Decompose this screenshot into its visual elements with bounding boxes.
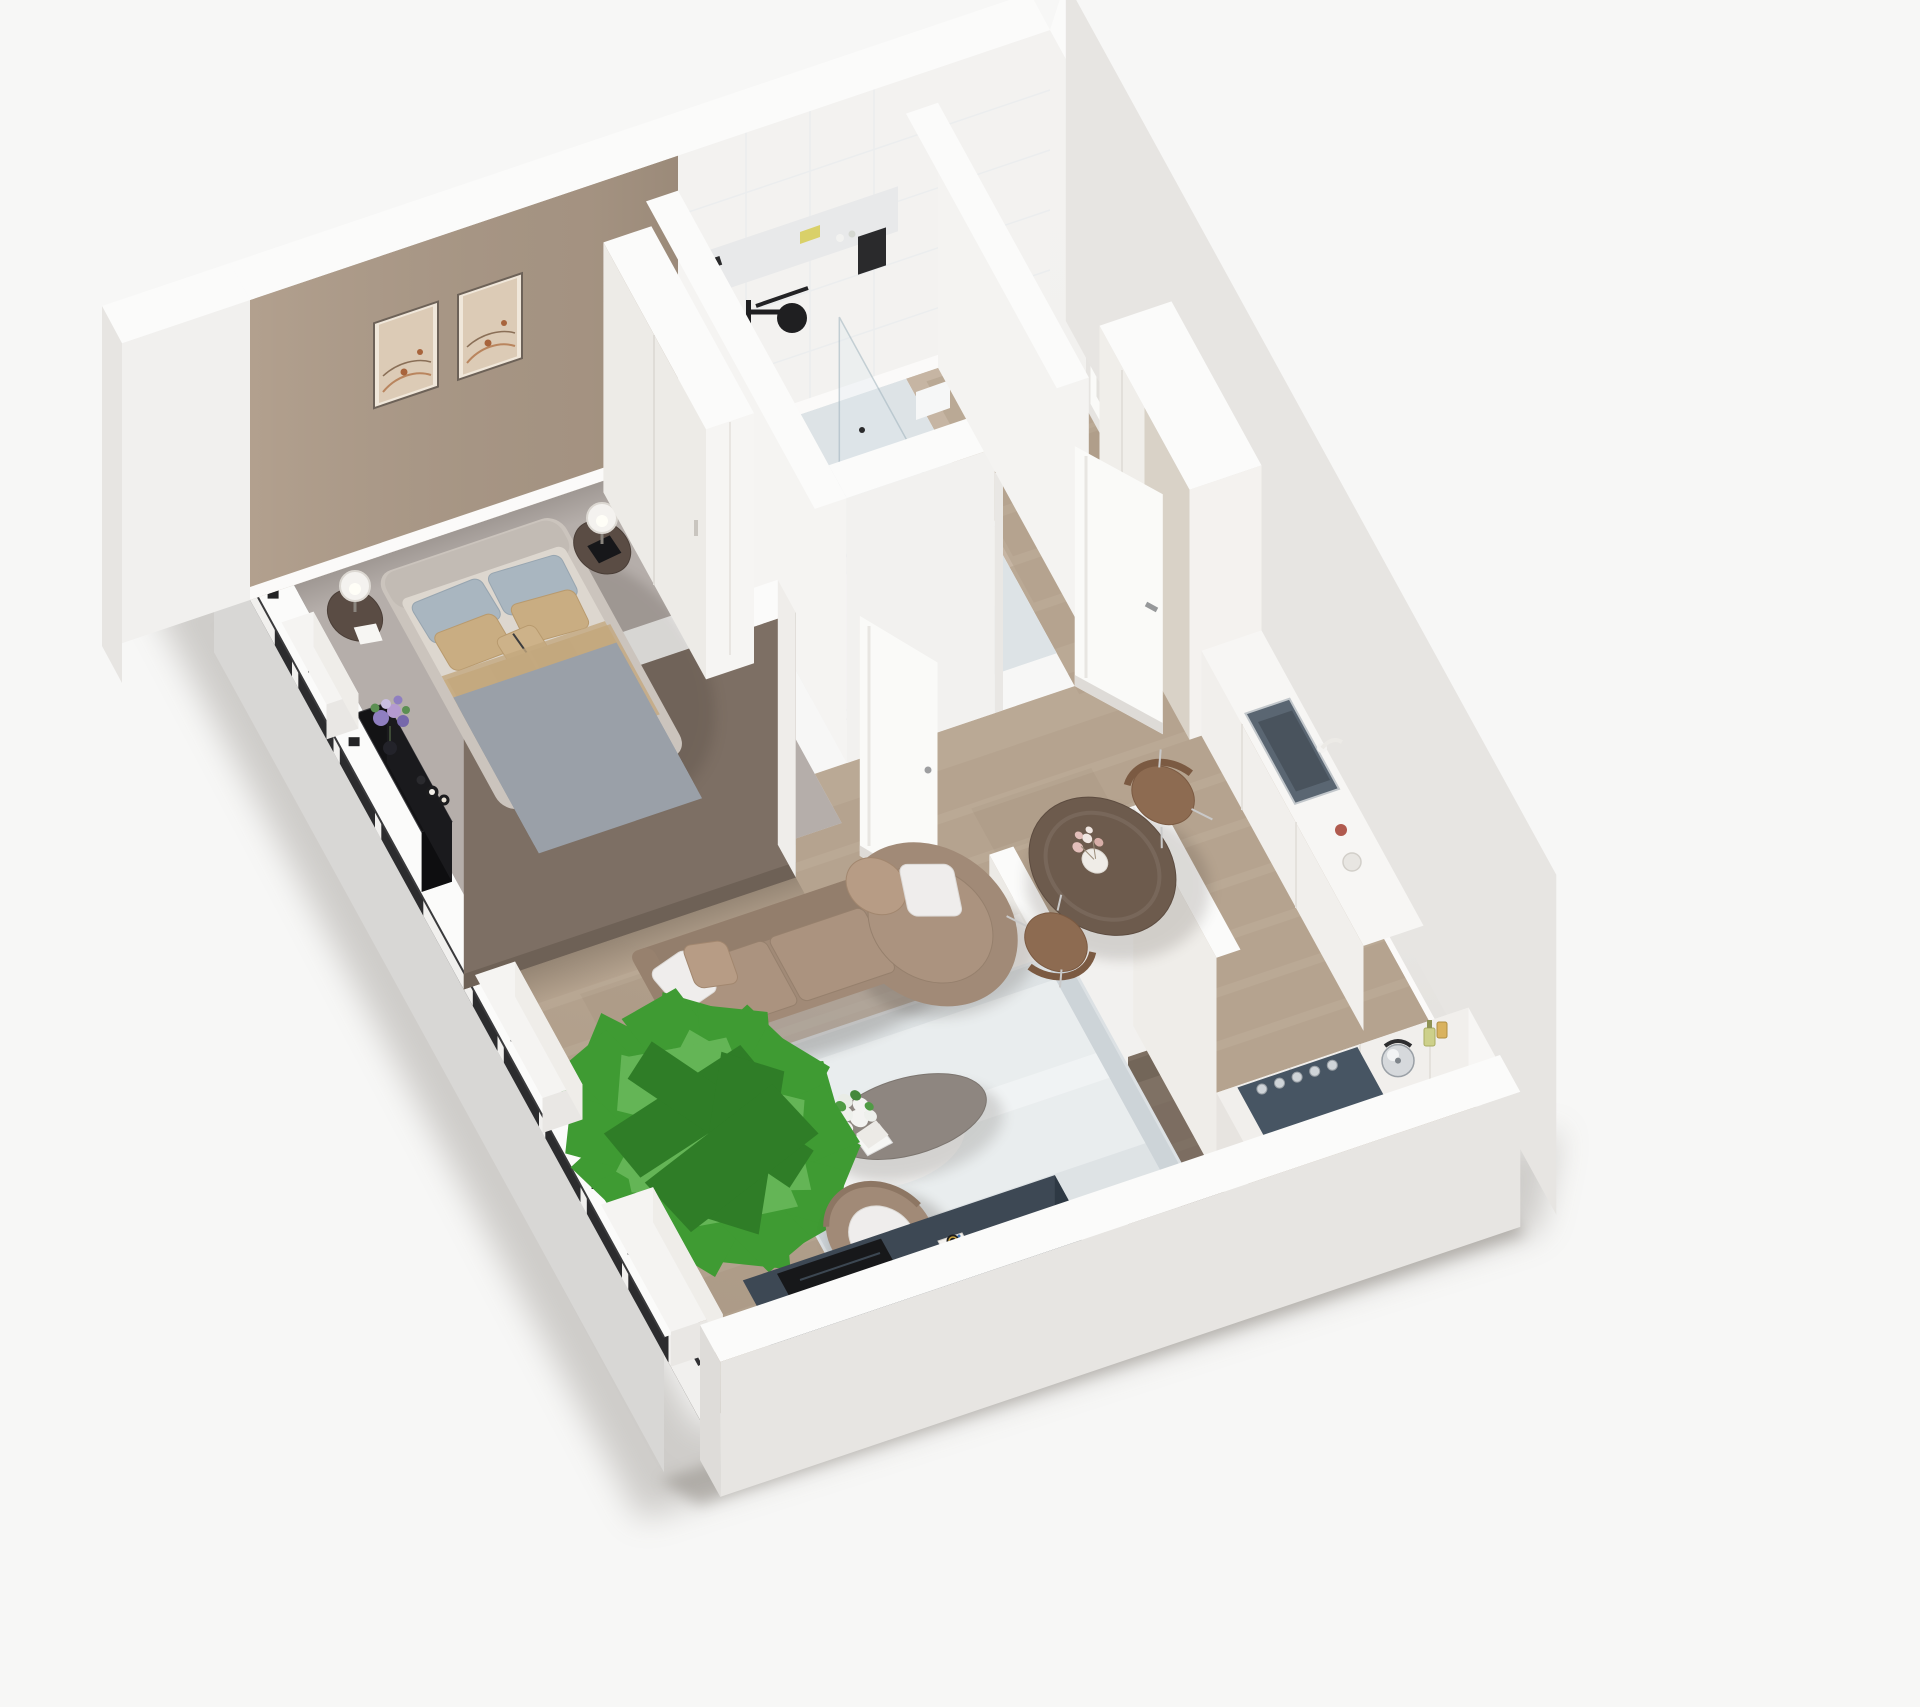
floorplan-render-stage — [0, 0, 1920, 1707]
partition-end-cap — [778, 580, 796, 878]
pillow-white-chaise — [898, 864, 963, 916]
door-jamb-west — [995, 470, 1003, 713]
open-bathroom-door — [1075, 446, 1163, 734]
potted-plant — [625, 1056, 801, 1210]
door-handle — [925, 767, 932, 774]
apartment-floorplan-svg — [0, 0, 1920, 1707]
small-bowl — [1335, 824, 1347, 836]
kettle — [1382, 1041, 1414, 1077]
